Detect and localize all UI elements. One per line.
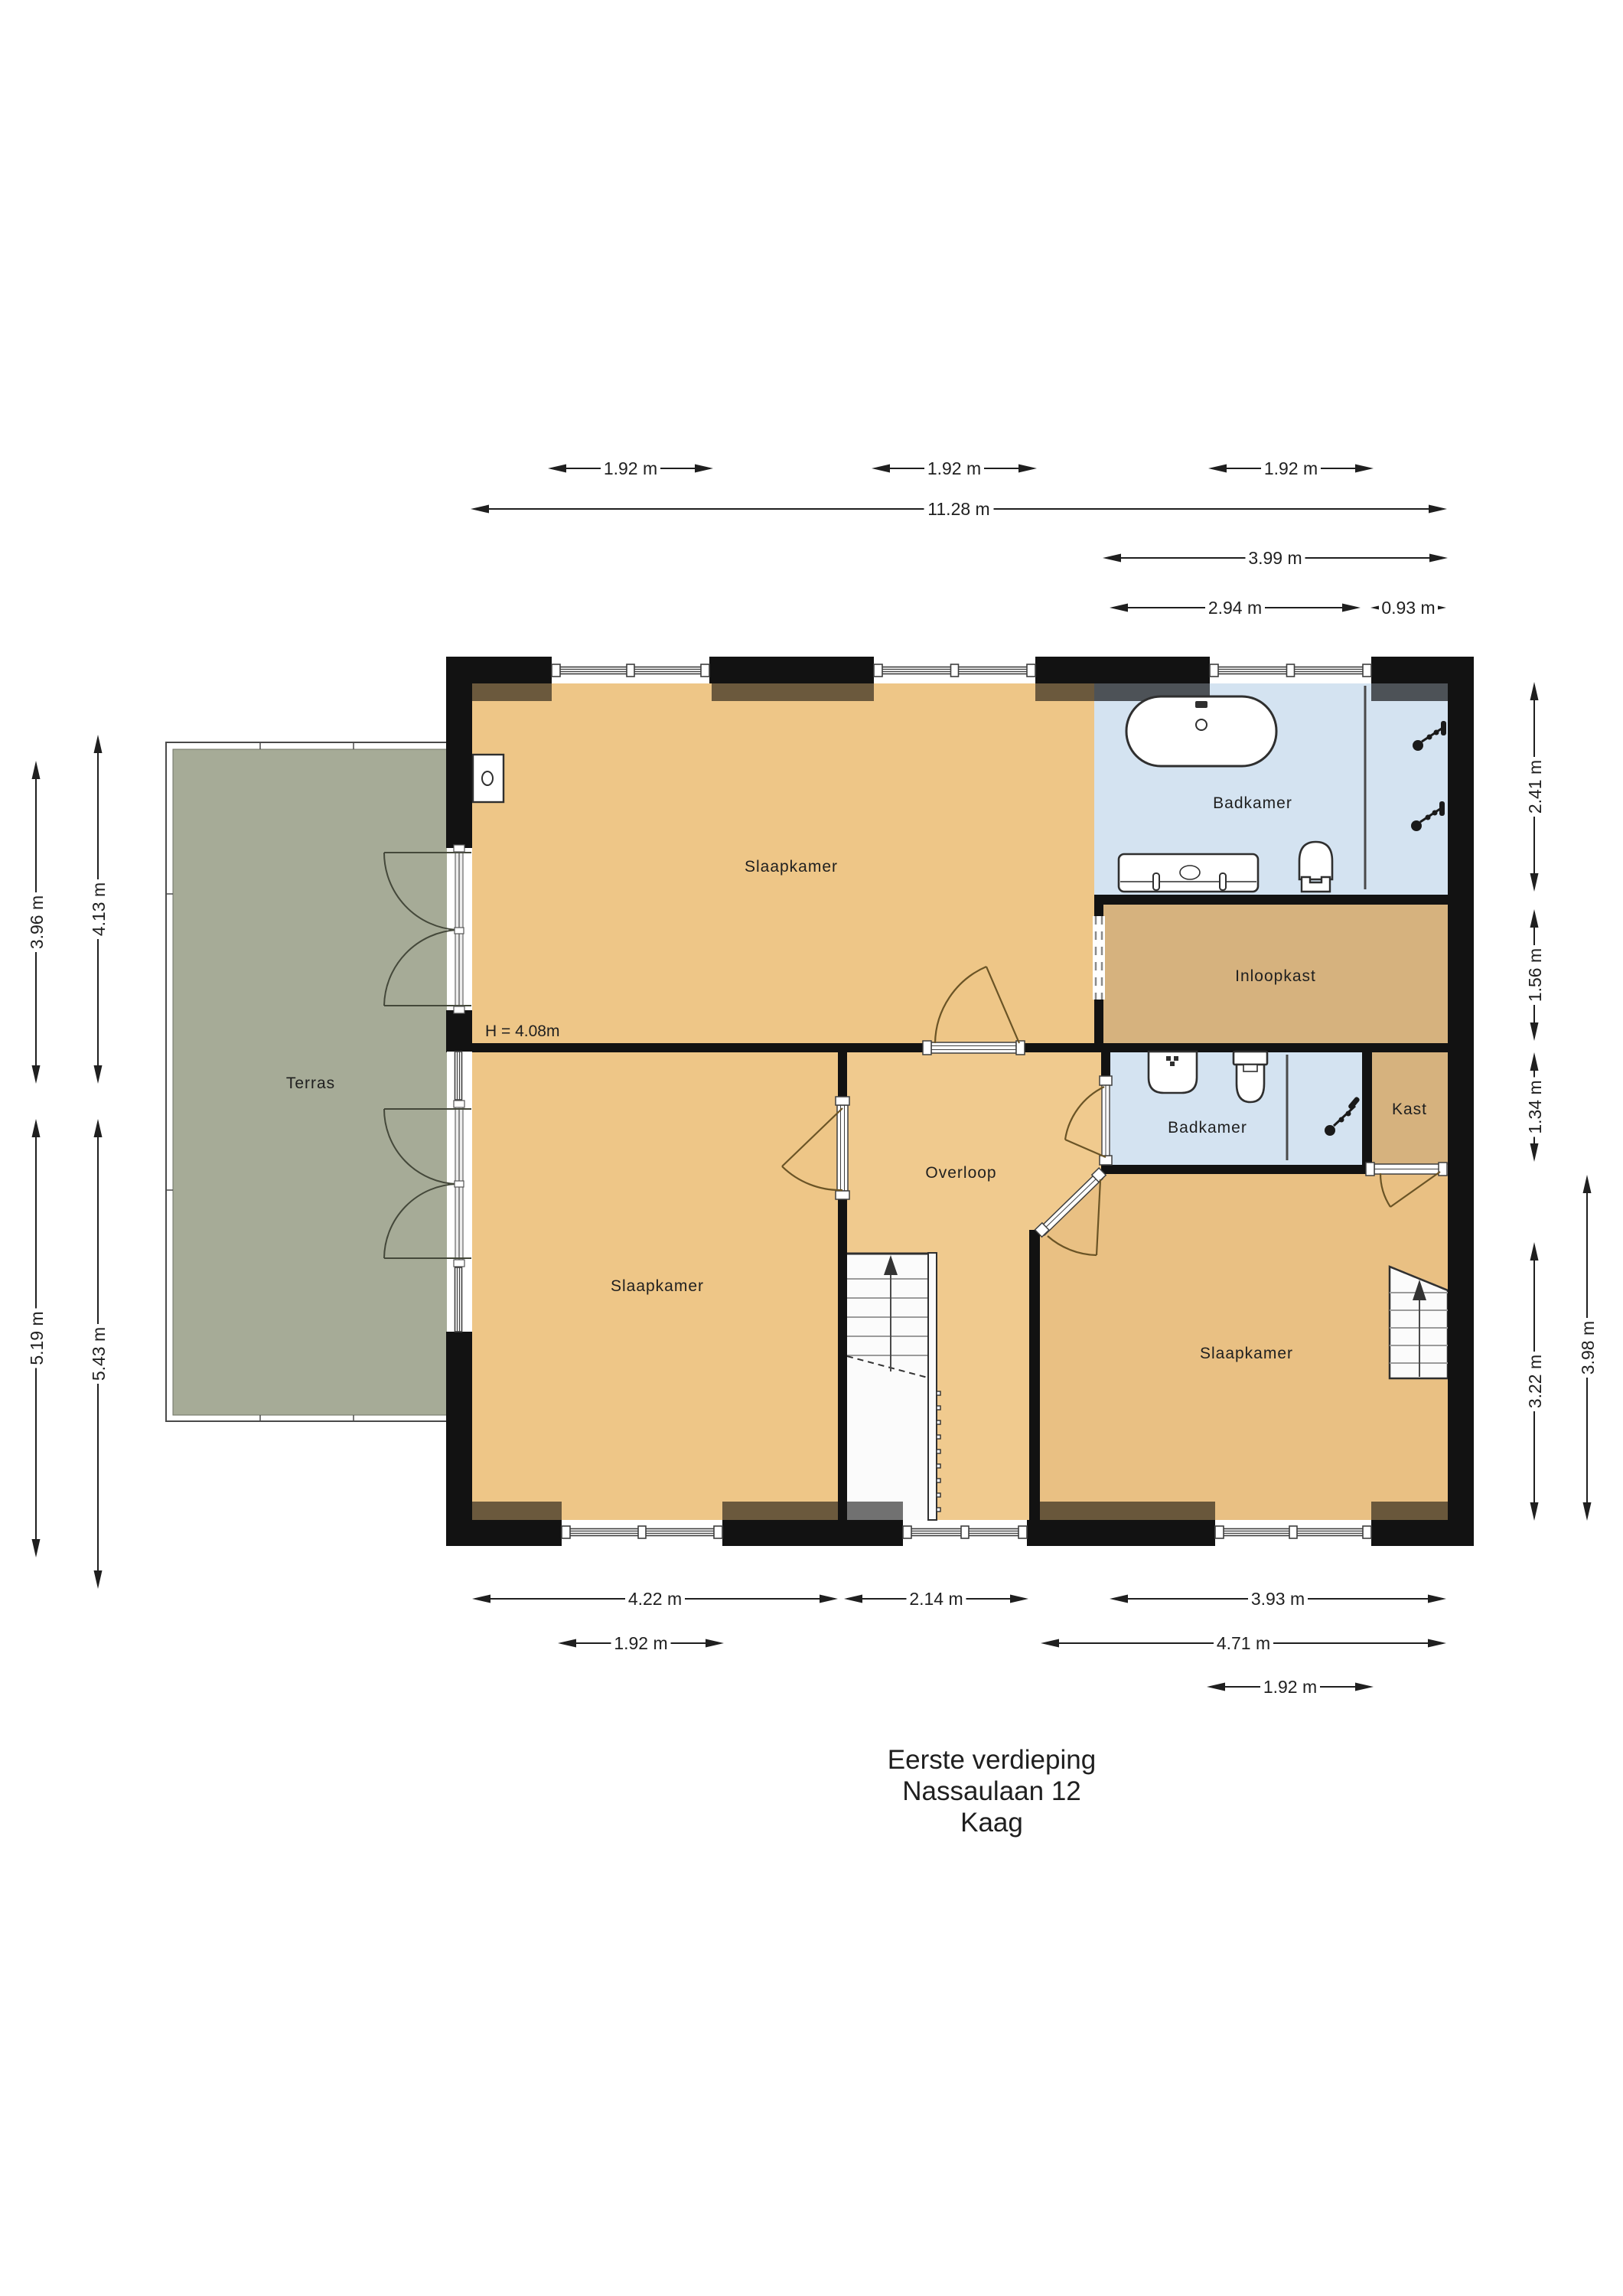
svg-text:1.92 m: 1.92 m	[614, 1633, 667, 1653]
svg-text:0.93 m: 0.93 m	[1381, 598, 1435, 618]
svg-text:H = 4.08m: H = 4.08m	[485, 1022, 559, 1040]
svg-text:Eerste verdieping: Eerste verdieping	[888, 1745, 1096, 1775]
svg-text:5.19 m: 5.19 m	[27, 1311, 47, 1365]
svg-text:Terras: Terras	[286, 1075, 335, 1092]
svg-text:4.71 m: 4.71 m	[1217, 1633, 1270, 1653]
svg-text:Nassaulaan 12: Nassaulaan 12	[902, 1776, 1081, 1806]
svg-text:5.43 m: 5.43 m	[89, 1327, 109, 1381]
svg-text:4.22 m: 4.22 m	[628, 1589, 682, 1609]
svg-text:2.14 m: 2.14 m	[909, 1589, 963, 1609]
svg-text:Slaapkamer: Slaapkamer	[1200, 1345, 1293, 1362]
svg-text:Inloopkast: Inloopkast	[1235, 967, 1316, 985]
svg-text:3.22 m: 3.22 m	[1525, 1355, 1545, 1408]
svg-text:3.99 m: 3.99 m	[1248, 548, 1302, 568]
svg-text:1.56 m: 1.56 m	[1525, 948, 1545, 1002]
svg-text:Slaapkamer: Slaapkamer	[745, 858, 838, 876]
svg-text:3.98 m: 3.98 m	[1578, 1321, 1598, 1375]
svg-text:4.13 m: 4.13 m	[89, 882, 109, 936]
svg-text:1.92 m: 1.92 m	[1264, 458, 1318, 478]
svg-text:3.96 m: 3.96 m	[27, 895, 47, 949]
svg-text:1.92 m: 1.92 m	[1263, 1677, 1317, 1697]
svg-text:1.92 m: 1.92 m	[604, 458, 657, 478]
svg-text:11.28 m: 11.28 m	[927, 499, 989, 519]
svg-text:Badkamer: Badkamer	[1168, 1119, 1247, 1137]
svg-text:Badkamer: Badkamer	[1213, 794, 1292, 812]
svg-text:1.92 m: 1.92 m	[927, 458, 981, 478]
svg-text:Kaag: Kaag	[960, 1808, 1023, 1838]
svg-text:Slaapkamer: Slaapkamer	[611, 1277, 704, 1295]
svg-text:Overloop: Overloop	[925, 1164, 996, 1182]
svg-text:2.94 m: 2.94 m	[1208, 598, 1262, 618]
svg-text:1.34 m: 1.34 m	[1525, 1080, 1545, 1133]
svg-text:Kast: Kast	[1392, 1101, 1427, 1118]
svg-text:3.93 m: 3.93 m	[1251, 1589, 1305, 1609]
svg-text:2.41 m: 2.41 m	[1525, 760, 1545, 814]
